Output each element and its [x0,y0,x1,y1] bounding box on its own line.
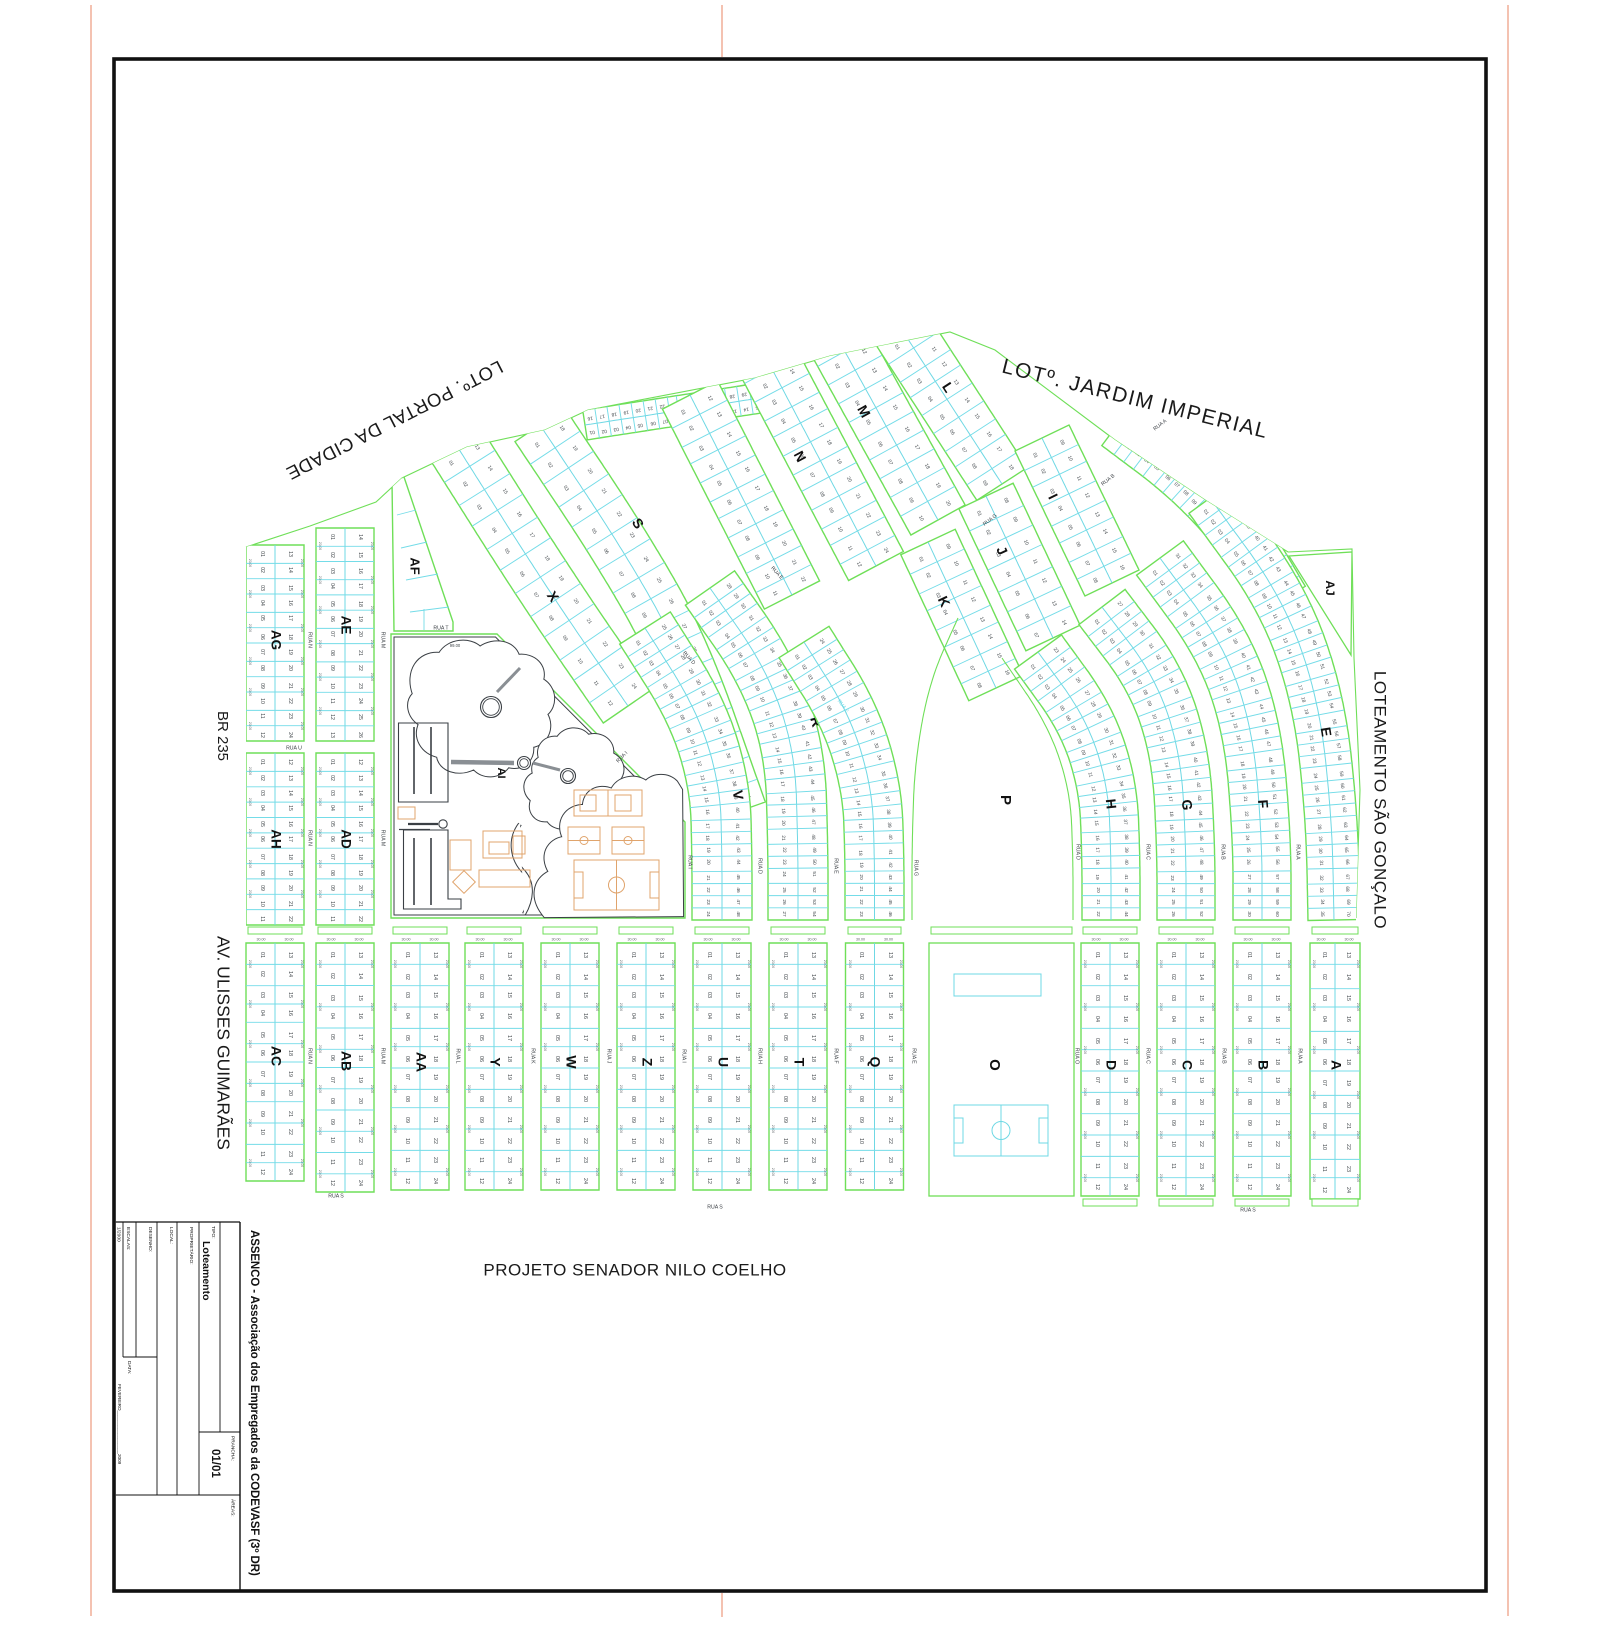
svg-text:12: 12 [1170,1184,1176,1190]
svg-text:20.00: 20.00 [695,1168,699,1176]
svg-text:07: 07 [706,1074,712,1080]
svg-text:05: 05 [1246,1038,1252,1044]
svg-text:20.00: 20.00 [671,1003,675,1011]
svg-text:04: 04 [554,1013,560,1019]
svg-text:58: 58 [1336,755,1343,761]
svg-text:20.00: 20.00 [1356,1174,1360,1182]
svg-text:43: 43 [735,847,741,853]
svg-text:15: 15 [810,992,816,998]
svg-text:20.00: 20.00 [467,960,471,968]
svg-text:23: 23 [357,683,363,689]
svg-text:42: 42 [1195,782,1201,788]
svg-text:13: 13 [329,732,335,738]
svg-text:03: 03 [782,992,788,998]
svg-text:20.00: 20.00 [519,1125,523,1133]
svg-text:30.00: 30.00 [1092,938,1101,942]
svg-text:18: 18 [432,1056,438,1062]
svg-text:24: 24 [1274,1184,1280,1190]
svg-text:DESENHO:: DESENHO: [147,1227,153,1252]
svg-text:19: 19 [1122,1077,1128,1083]
svg-text:04: 04 [404,1013,410,1019]
svg-text:30.00: 30.00 [476,938,485,942]
svg-text:20.00: 20.00 [1083,960,1087,968]
svg-text:20.00: 20.00 [318,1127,322,1135]
svg-text:U: U [715,1057,731,1067]
svg-text:19: 19 [1168,824,1174,830]
svg-text:20.00: 20.00 [1159,1003,1163,1011]
svg-text:07: 07 [782,1074,788,1080]
svg-text:23: 23 [506,1157,512,1163]
svg-text:RUA A: RUA A [1295,844,1301,860]
svg-text:20.00: 20.00 [823,1168,827,1176]
svg-text:08: 08 [706,1096,712,1102]
svg-text:20.00: 20.00 [300,722,304,730]
svg-text:23: 23 [287,713,293,719]
svg-text:16: 16 [1274,1016,1280,1022]
svg-text:48: 48 [1198,859,1204,865]
svg-text:30.00: 30.00 [1196,938,1205,942]
svg-text:12: 12 [706,1178,712,1184]
svg-text:W: W [563,1055,579,1069]
svg-text:18: 18 [287,634,293,640]
svg-text:14: 14 [887,974,893,980]
svg-text:20.00: 20.00 [695,960,699,968]
svg-text:03: 03 [554,992,560,998]
svg-text:20.00: 20.00 [318,673,322,681]
svg-text:22: 22 [810,1138,816,1144]
svg-text:09: 09 [329,665,335,671]
svg-text:20.00: 20.00 [370,1085,374,1093]
svg-text:18: 18 [1198,1059,1204,1065]
svg-text:24: 24 [658,1178,664,1184]
svg-text:20.00: 20.00 [899,1003,903,1011]
svg-text:20.00: 20.00 [248,1159,252,1167]
svg-text:02: 02 [630,974,636,980]
svg-text:01: 01 [782,952,788,958]
svg-text:12: 12 [478,1178,484,1184]
svg-text:30.00: 30.00 [808,938,817,942]
svg-text:11: 11 [1094,1163,1100,1169]
svg-text:G: G [1179,799,1196,811]
svg-text:RUA D: RUA D [757,858,763,874]
svg-text:20.00: 20.00 [300,657,304,665]
svg-text:20.00: 20.00 [1287,1088,1291,1096]
svg-text:20.00: 20.00 [1211,1088,1215,1096]
svg-text:08: 08 [858,1096,864,1102]
svg-text:10: 10 [554,1138,560,1144]
svg-text:20.00: 20.00 [1235,1088,1239,1096]
svg-text:41: 41 [1123,874,1129,880]
svg-text:25: 25 [1245,847,1251,853]
svg-text:23: 23 [1169,875,1175,881]
svg-text:20.00: 20.00 [393,1003,397,1011]
svg-text:20.00: 20.00 [1159,1131,1163,1139]
svg-text:21: 21 [705,875,711,881]
svg-text:14: 14 [1345,974,1351,980]
svg-text:10: 10 [858,1138,864,1144]
svg-text:23: 23 [858,911,864,917]
svg-text:30.00: 30.00 [257,938,266,942]
svg-text:05: 05 [259,821,265,827]
svg-text:03: 03 [1170,995,1176,1001]
svg-text:21: 21 [287,1111,293,1117]
svg-text:23: 23 [1345,1166,1351,1172]
svg-text:19: 19 [582,1074,588,1080]
svg-text:RUA B: RUA B [1221,1048,1227,1064]
svg-text:70: 70 [1345,911,1351,917]
svg-text:21: 21 [780,835,786,841]
svg-text:03: 03 [1246,995,1252,1001]
svg-text:20.00: 20.00 [318,640,322,648]
svg-text:14: 14 [357,534,363,540]
svg-text:18: 18 [357,1055,363,1061]
svg-text:20: 20 [1198,1099,1204,1105]
svg-text:15: 15 [432,992,438,998]
svg-text:20.00: 20.00 [248,657,252,665]
svg-text:05: 05 [1094,1038,1100,1044]
svg-text:PROPRIETÁRIO:: PROPRIETÁRIO: [188,1227,195,1265]
svg-text:41: 41 [887,849,893,855]
svg-text:18: 18 [287,854,293,860]
svg-text:22: 22 [287,1129,293,1135]
svg-text:16: 16 [1345,1016,1351,1022]
svg-text:10: 10 [1170,1141,1176,1147]
svg-text:17: 17 [857,835,863,841]
svg-text:16: 16 [1122,1016,1128,1022]
svg-text:24: 24 [1312,773,1319,779]
svg-text:22: 22 [705,887,711,893]
svg-text:20.00: 20.00 [1135,1131,1139,1139]
svg-text:08: 08 [259,665,265,671]
svg-text:44: 44 [1123,911,1129,917]
svg-text:09: 09 [404,1117,410,1123]
svg-text:20.00: 20.00 [370,542,374,550]
svg-text:20.00: 20.00 [595,1085,599,1093]
svg-text:LOCAL:: LOCAL: [168,1227,174,1244]
svg-text:03: 03 [259,992,265,998]
svg-text:22: 22 [432,1138,438,1144]
svg-text:18: 18 [857,850,863,856]
svg-text:39: 39 [886,822,892,828]
svg-text:19: 19 [357,870,363,876]
svg-text:17: 17 [357,583,363,589]
svg-text:04: 04 [329,583,335,589]
svg-text:27: 27 [781,911,787,917]
svg-text:22: 22 [582,1138,588,1144]
svg-text:20.00: 20.00 [543,1043,547,1051]
svg-text:21: 21 [432,1117,438,1123]
svg-text:17: 17 [1094,847,1100,853]
svg-text:Loteamento: Loteamento [200,1241,212,1301]
svg-text:20: 20 [810,1096,816,1102]
svg-text:16: 16 [357,1013,363,1019]
svg-text:RUA H: RUA H [757,1048,763,1064]
svg-text:24: 24 [287,732,293,738]
svg-text:20.00: 20.00 [318,1085,322,1093]
svg-text:A: A [1328,1060,1344,1070]
svg-text:19: 19 [357,1077,363,1083]
svg-text:19: 19 [1198,1077,1204,1083]
svg-text:30.00: 30.00 [327,938,336,942]
svg-text:01: 01 [1321,952,1327,958]
svg-text:02: 02 [478,974,484,980]
svg-text:26: 26 [357,732,363,738]
svg-text:21: 21 [1095,899,1101,905]
svg-text:04: 04 [858,1013,864,1019]
svg-text:08: 08 [1321,1102,1327,1108]
svg-text:12: 12 [782,1178,788,1184]
svg-text:23: 23 [1311,758,1318,764]
svg-text:20.00: 20.00 [300,1040,304,1048]
svg-text:51: 51 [1198,899,1204,905]
svg-text:16: 16 [1198,1016,1204,1022]
svg-text:16: 16 [1166,785,1172,791]
svg-text:RUA N: RUA N [307,830,313,846]
svg-text:24: 24 [357,1180,363,1186]
svg-text:PROJETO SENADOR NILO COELHO: PROJETO SENADOR NILO COELHO [483,1260,786,1279]
svg-text:RUA C: RUA C [1145,844,1151,860]
svg-text:20: 20 [506,1096,512,1102]
svg-text:RUA S: RUA S [328,1193,344,1199]
svg-text:RUA S: RUA S [707,1204,723,1210]
svg-text:19: 19 [287,649,293,655]
svg-text:04: 04 [1321,1016,1327,1022]
svg-text:04: 04 [782,1013,788,1019]
svg-text:19: 19 [780,808,786,814]
svg-text:05: 05 [259,615,265,621]
svg-text:12: 12 [1321,1187,1327,1193]
svg-text:20.00: 20.00 [519,1085,523,1093]
svg-text:21: 21 [357,901,363,907]
svg-text:08: 08 [782,1096,788,1102]
svg-text:15: 15 [856,811,862,817]
svg-text:52: 52 [1272,809,1278,815]
svg-text:07: 07 [329,854,335,860]
svg-text:03: 03 [329,568,335,574]
svg-text:20: 20 [432,1096,438,1102]
svg-text:17: 17 [506,1035,512,1041]
svg-text:16: 16 [704,809,710,815]
svg-text:LOTEAMENTO SÃO GONÇALO: LOTEAMENTO SÃO GONÇALO [1371,671,1390,929]
svg-text:06: 06 [478,1056,484,1062]
svg-text:AH: AH [268,829,283,849]
svg-text:T: T [791,1058,807,1067]
svg-text:11: 11 [1170,1163,1176,1169]
svg-text:13: 13 [1274,952,1280,958]
svg-text:RUA E: RUA E [911,1048,917,1064]
svg-text:13: 13 [1345,952,1351,958]
svg-text:18: 18 [506,1056,512,1062]
svg-text:35: 35 [1319,911,1325,917]
svg-text:05: 05 [329,1034,335,1040]
svg-text:20: 20 [1095,887,1101,893]
svg-text:10: 10 [478,1138,484,1144]
svg-text:20.00: 20.00 [318,798,322,806]
svg-text:59: 59 [1338,771,1345,777]
svg-text:07: 07 [1170,1077,1176,1083]
svg-text:20.00: 20.00 [771,960,775,968]
svg-text:06: 06 [1170,1059,1176,1065]
svg-text:20.00: 20.00 [1287,1046,1291,1054]
svg-text:43: 43 [1196,795,1202,801]
svg-text:01/01: 01/01 [209,1449,221,1478]
svg-text:22: 22 [1095,911,1101,917]
svg-text:23: 23 [287,1151,293,1157]
svg-text:30.00: 30.00 [628,938,637,942]
svg-text:21: 21 [1169,848,1175,854]
svg-text:16: 16 [432,1013,438,1019]
svg-text:14: 14 [357,973,363,979]
svg-text:03: 03 [259,585,265,591]
svg-text:30.00: 30.00 [856,938,865,942]
svg-text:B: B [1255,1060,1271,1070]
svg-text:20.00: 20.00 [370,1170,374,1178]
svg-text:20.00: 20.00 [899,1168,903,1176]
svg-text:09: 09 [1246,1120,1252,1126]
svg-text:20.00: 20.00 [848,1085,852,1093]
svg-text:14: 14 [287,971,293,977]
svg-text:AF: AF [408,557,423,574]
svg-text:12: 12 [287,759,293,765]
svg-text:14: 14 [810,974,816,980]
svg-text:19: 19 [1345,1080,1351,1086]
svg-text:AB: AB [338,1051,354,1071]
svg-text:24: 24 [887,1178,893,1184]
svg-text:28: 28 [1246,887,1252,893]
svg-text:24: 24 [810,1178,816,1184]
svg-text:RUA M: RUA M [380,830,386,846]
svg-text:18: 18 [1094,859,1100,865]
svg-text:25: 25 [1170,899,1176,905]
svg-text:20.00: 20.00 [1211,1003,1215,1011]
svg-text:20.00: 20.00 [771,1168,775,1176]
svg-text:22: 22 [1345,1144,1351,1150]
svg-text:04: 04 [706,1013,712,1019]
svg-text:05: 05 [706,1035,712,1041]
svg-text:20.00: 20.00 [1211,1131,1215,1139]
svg-text:14: 14 [1274,974,1280,980]
svg-text:12: 12 [329,714,335,720]
svg-text:11: 11 [706,1157,712,1163]
svg-text:20.00: 20.00 [393,1125,397,1133]
svg-text:P: P [997,795,1014,805]
svg-text:20.00: 20.00 [445,1085,449,1093]
svg-text:06: 06 [329,616,335,622]
svg-text:20.00: 20.00 [695,1003,699,1011]
svg-text:03: 03 [858,992,864,998]
svg-text:17: 17 [357,1034,363,1040]
svg-text:20.00: 20.00 [1235,1003,1239,1011]
svg-text:02: 02 [782,974,788,980]
svg-text:20.00: 20.00 [595,960,599,968]
svg-text:46: 46 [735,887,741,893]
svg-text:17: 17 [734,1035,740,1041]
svg-text:06: 06 [259,1050,265,1056]
svg-text:20: 20 [734,1096,740,1102]
svg-text:RUA G: RUA G [913,860,919,876]
svg-text:16: 16 [857,823,863,829]
svg-text:30.00: 30.00 [1272,938,1281,942]
svg-text:11: 11 [329,698,335,703]
svg-text:20.00: 20.00 [1159,1046,1163,1054]
svg-text:22: 22 [357,916,363,922]
svg-text:20.00: 20.00 [619,960,623,968]
svg-text:19: 19 [287,870,293,876]
svg-text:10: 10 [630,1138,636,1144]
svg-text:01: 01 [1170,952,1176,958]
svg-text:20.00: 20.00 [671,960,675,968]
svg-text:30.00: 30.00 [580,938,589,942]
svg-text:14: 14 [1092,809,1098,815]
svg-text:04: 04 [259,600,265,606]
svg-text:10: 10 [329,901,335,907]
svg-text:54: 54 [811,911,817,917]
svg-text:20.00: 20.00 [695,1043,699,1051]
svg-text:05: 05 [478,1035,484,1041]
svg-text:04: 04 [630,1013,636,1019]
svg-text:30.00: 30.00 [402,938,411,942]
svg-text:20.00: 20.00 [445,1125,449,1133]
svg-text:20.00: 20.00 [1235,960,1239,968]
svg-text:07: 07 [1094,1077,1100,1083]
svg-text:21: 21 [357,650,363,656]
svg-text:20.00: 20.00 [848,1043,852,1051]
svg-text:18: 18 [1122,1059,1128,1065]
svg-text:20.00: 20.00 [370,798,374,806]
svg-text:20.00: 20.00 [248,1000,252,1008]
svg-text:04: 04 [329,1013,335,1019]
svg-text:22: 22 [1243,811,1249,817]
svg-text:06: 06 [329,836,335,842]
svg-text:20.00: 20.00 [823,1125,827,1133]
svg-text:07: 07 [259,854,265,860]
svg-text:RUA S: RUA S [1240,1207,1256,1213]
svg-text:15: 15 [734,992,740,998]
svg-text:04: 04 [1094,1016,1100,1022]
svg-text:50: 50 [1270,782,1276,788]
svg-text:12: 12 [554,1178,560,1184]
svg-text:08: 08 [478,1096,484,1102]
svg-text:20.00: 20.00 [823,960,827,968]
svg-text:04: 04 [259,1010,265,1016]
svg-text:20.00: 20.00 [519,1043,523,1051]
svg-text:01: 01 [858,952,864,958]
svg-text:02: 02 [554,974,560,980]
svg-text:42: 42 [734,835,740,841]
svg-text:20.00: 20.00 [300,829,304,837]
svg-text:20: 20 [357,1098,363,1104]
svg-text:30.00: 30.00 [780,938,789,942]
svg-text:20: 20 [780,820,786,826]
svg-text:20.00: 20.00 [771,1003,775,1011]
svg-text:C: C [1179,1060,1195,1070]
svg-text:21: 21 [810,1117,816,1123]
svg-text:10: 10 [404,1138,410,1144]
svg-text:20.00: 20.00 [370,673,374,681]
svg-text:35: 35 [1120,793,1127,799]
svg-text:07: 07 [259,1071,265,1077]
svg-text:15: 15 [887,992,893,998]
svg-text:17: 17 [1198,1038,1204,1044]
svg-text:07: 07 [478,1074,484,1080]
svg-text:20.00: 20.00 [248,559,252,567]
svg-text:F: F [1255,799,1272,809]
svg-text:20.00: 20.00 [747,1125,751,1133]
svg-text:20.00: 20.00 [318,960,322,968]
svg-text:20.00: 20.00 [747,1003,751,1011]
svg-text:05: 05 [1170,1038,1176,1044]
svg-text:22: 22 [506,1138,512,1144]
